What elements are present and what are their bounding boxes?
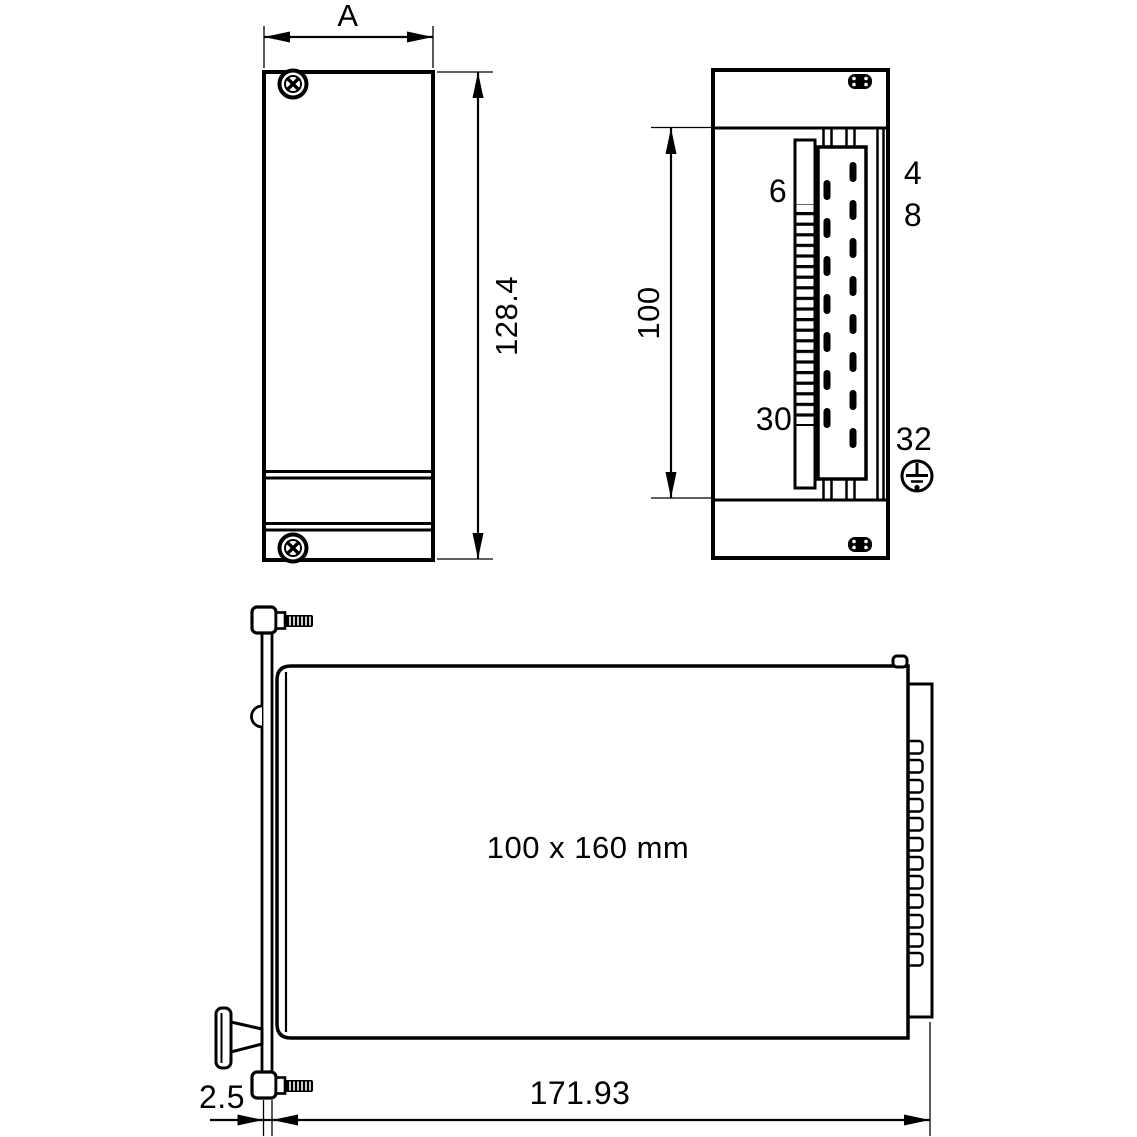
- phillips-screw-top-icon: [280, 71, 307, 98]
- pin-slot: [850, 314, 857, 334]
- drawing-canvas: A 128.4: [0, 0, 1137, 1137]
- arrowhead-left-small: [272, 1115, 298, 1126]
- arrowhead-right: [407, 32, 433, 43]
- arrowhead-up: [666, 128, 677, 154]
- front-panel: [264, 72, 433, 560]
- front-panel-strip: [262, 615, 272, 1085]
- connector-pin-tab: [908, 760, 923, 773]
- dim-height-128: 128.4: [437, 72, 524, 559]
- panel-notch: [252, 706, 263, 727]
- dim-height-label: 128.4: [489, 276, 524, 356]
- pin-slot: [824, 370, 831, 390]
- connector-pin-tab: [908, 915, 923, 928]
- arrowhead-left: [264, 32, 290, 43]
- rear-view: 6 30 4 8 32 100: [631, 70, 932, 558]
- pin-slot: [850, 238, 857, 258]
- pin-slot: [824, 218, 831, 238]
- connector-pin-tab: [908, 838, 923, 851]
- dim-length-label: 171.93: [530, 1075, 631, 1111]
- mounting-bracket-bottom: [252, 1072, 276, 1098]
- side-view: 100 x 160 mm 171.93 2.5: [199, 607, 932, 1136]
- pin-slot: [824, 332, 831, 352]
- card-tab: [893, 656, 907, 667]
- board-size-label: 100 x 160 mm: [487, 830, 689, 865]
- pin-slot: [850, 276, 857, 296]
- pin-slot: [850, 352, 857, 372]
- extractor-handle: [216, 1008, 262, 1068]
- pin-slot: [850, 390, 857, 410]
- technical-drawing-page: A 128.4: [0, 0, 1137, 1137]
- arrowhead-up: [473, 72, 484, 98]
- arrowhead-down: [473, 533, 484, 559]
- connector-pin-tab: [908, 857, 923, 870]
- pin-slot: [850, 428, 857, 448]
- pin-slot: [850, 162, 857, 182]
- front-view: A 128.4: [264, 0, 524, 562]
- connector-pin-tab: [908, 780, 923, 793]
- captive-screw-bottom-icon: [276, 1078, 313, 1094]
- pin-slot: [824, 256, 831, 276]
- arrowhead-right-small: [238, 1115, 264, 1126]
- dim-width-label: A: [337, 0, 358, 33]
- captive-screw-top-icon: [276, 613, 313, 629]
- pin-label-8: 8: [904, 197, 922, 233]
- pin-label-4: 4: [904, 155, 922, 191]
- rivet-top-icon: [848, 74, 872, 89]
- handle-grip: [216, 1008, 231, 1068]
- pin-label-30: 30: [756, 401, 793, 437]
- pin-slot: [824, 180, 831, 200]
- connector-pin-tab: [908, 953, 923, 966]
- connector-pin-tab: [908, 741, 923, 754]
- pin-label-6: 6: [769, 173, 787, 209]
- phillips-screw-bottom-icon: [280, 535, 307, 562]
- mounting-bracket-top: [252, 607, 276, 633]
- dim-height-100: 100: [631, 128, 711, 499]
- earth-ground-icon: [902, 461, 932, 491]
- connector-pin-tabs: [908, 741, 923, 966]
- connector-pin-tab: [908, 818, 923, 831]
- dim-thickness-label: 2.5: [199, 1079, 245, 1115]
- arrowhead-right: [904, 1115, 930, 1126]
- connector-pin-tab: [908, 876, 923, 889]
- pin-label-32: 32: [896, 421, 933, 457]
- pin-slot: [824, 408, 831, 428]
- rivet-bottom-icon: [848, 537, 872, 552]
- dim-width-a: A: [264, 0, 433, 68]
- arrowhead-down: [666, 472, 677, 498]
- pin-slot: [824, 294, 831, 314]
- connector-pin-tab: [908, 799, 923, 812]
- pin-slot: [850, 200, 857, 220]
- dim-height-label: 100: [631, 286, 666, 339]
- handle-neck: [231, 1022, 262, 1052]
- connector-pin-tab: [908, 934, 923, 947]
- connector-pin-tab: [908, 895, 923, 908]
- connector-flange-hatch: [797, 204, 814, 426]
